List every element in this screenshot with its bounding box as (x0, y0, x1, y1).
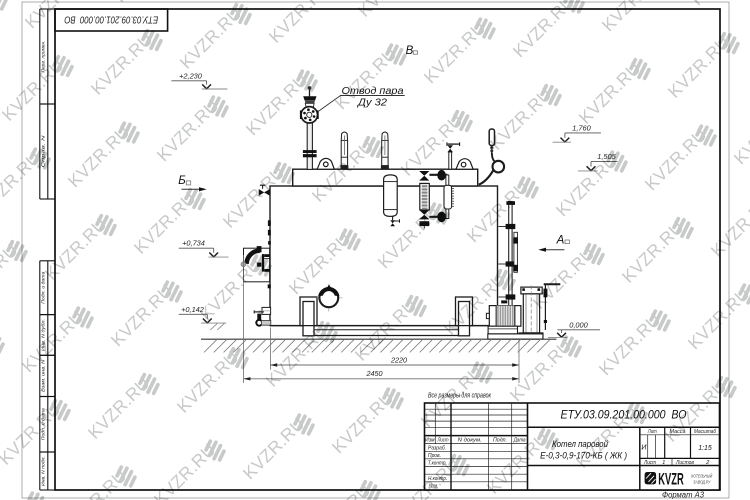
svg-text:KVZR.RU: KVZR.RU (529, 243, 599, 313)
svg-text:KVZR.RU: KVZR.RU (354, 0, 424, 21)
svg-text:KVZR.RU: KVZR.RU (64, 121, 134, 191)
svg-text:KVZR.RU: KVZR.RU (687, 0, 750, 9)
svg-text:KVZR.RU: KVZR.RU (242, 69, 312, 139)
svg-text:Инв. N подл.: Инв. N подл. (40, 456, 46, 486)
svg-text:KVZR.RU: KVZR.RU (173, 347, 243, 417)
svg-text:+2,230: +2,230 (179, 71, 203, 80)
svg-text:1: 1 (662, 460, 665, 466)
svg-text:KVZR.RU: KVZR.RU (18, 306, 88, 376)
svg-text:KVZR.RU: KVZR.RU (486, 84, 556, 154)
svg-text:Б: Б (178, 175, 186, 187)
svg-text:Разраб.: Разраб. (428, 445, 446, 451)
svg-text:KVZR: KVZR (658, 471, 684, 489)
svg-text:KVZR.RU: KVZR.RU (328, 387, 398, 457)
svg-text:Лист: Лист (643, 460, 656, 466)
svg-text:Лист: Лист (437, 438, 449, 444)
svg-text:KVZR.RU: KVZR.RU (196, 254, 266, 324)
svg-text:KVZR.RU: KVZR.RU (552, 150, 622, 220)
svg-text:Подп.: Подп. (493, 438, 507, 444)
svg-text:KVZR.RU: KVZR.RU (239, 413, 309, 483)
svg-text:ЕТУ.03.09.201.00.000 ВО: ЕТУ.03.09.201.00.000 ВО (64, 14, 158, 25)
svg-text:KVZR.RU: KVZR.RU (420, 17, 490, 87)
svg-text:+0,734: +0,734 (182, 239, 205, 248)
svg-text:KVZR.RU: KVZR.RU (41, 214, 111, 284)
svg-text:Изм: Изм (425, 438, 435, 444)
svg-text:Подп. и дата: Подп. и дата (40, 271, 46, 303)
svg-text:KVZR.RU: KVZR.RU (707, 191, 750, 261)
svg-text:KVZR.RU: KVZR.RU (262, 321, 332, 391)
svg-text:KVZR.RU: KVZR.RU (641, 124, 711, 194)
svg-text:2450: 2450 (366, 369, 383, 378)
svg-text:Лит: Лит (647, 429, 657, 435)
svg-text:N докум.: N докум. (458, 438, 482, 444)
svg-text:KVZR.RU: KVZR.RU (265, 0, 335, 47)
svg-text:Листов: Листов (675, 460, 694, 466)
svg-text:Пров.: Пров. (428, 453, 441, 459)
svg-text:KVZR.RU: KVZR.RU (87, 29, 157, 99)
svg-text:КОТЕЛЬНЫЙ: КОТЕЛЬНЫЙ (691, 472, 713, 479)
svg-text:KVZR.RU: KVZR.RU (595, 309, 665, 379)
svg-text:KVZR.RU: KVZR.RU (107, 280, 177, 350)
svg-text:0,000: 0,000 (569, 320, 588, 329)
svg-text:KVZR.RU: KVZR.RU (730, 98, 750, 168)
svg-text:ЗАВОД.РУ: ЗАВОД.РУ (693, 479, 711, 484)
svg-text:KVZR.RU: KVZR.RU (176, 3, 246, 73)
svg-text:В: В (406, 45, 414, 57)
svg-text:KVZR.RU: KVZR.RU (153, 95, 223, 165)
svg-text:Формат А3: Формат А3 (662, 490, 705, 499)
svg-text:KVZR.RU: KVZR.RU (575, 58, 645, 128)
svg-text:2220: 2220 (390, 355, 407, 364)
svg-text:KVZR.RU: KVZR.RU (598, 0, 668, 35)
svg-text:KVZR.RU: KVZR.RU (110, 0, 180, 6)
svg-text:KVZR.RU: KVZR.RU (664, 32, 734, 102)
svg-text:KVZR.RU: KVZR.RU (0, 55, 68, 125)
svg-text:KVZR.RU: KVZR.RU (84, 373, 154, 443)
svg-text:KVZR.RU: KVZR.RU (618, 217, 688, 287)
svg-text:А: А (556, 235, 565, 247)
svg-text:Ду 32: Ду 32 (357, 97, 387, 109)
svg-text:KVZR.RU: KVZR.RU (150, 439, 220, 500)
svg-text:KVZR.RU: KVZR.RU (506, 335, 576, 405)
svg-text:1:15: 1:15 (698, 445, 712, 452)
svg-text:Масштаб: Масштаб (694, 429, 717, 435)
